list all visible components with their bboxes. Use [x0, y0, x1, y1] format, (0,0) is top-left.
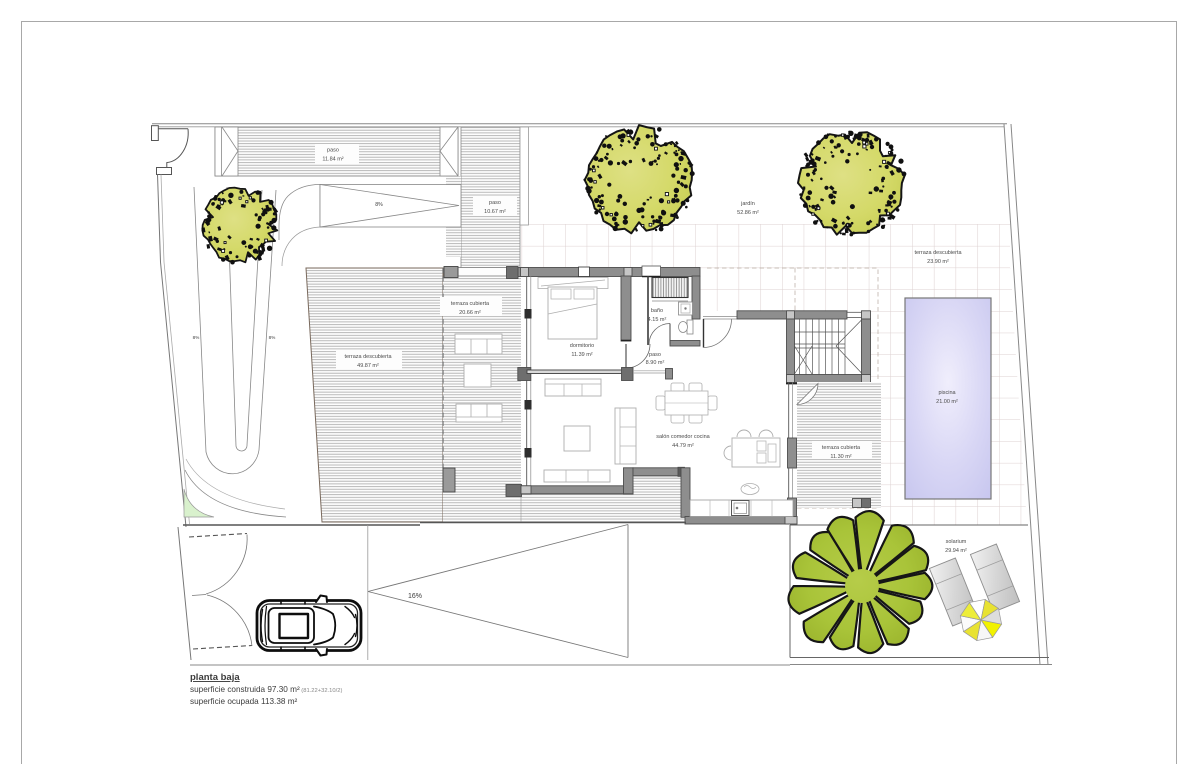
svg-text:52.86 m²: 52.86 m²: [737, 210, 759, 216]
svg-text:21.00 m²: 21.00 m²: [936, 399, 958, 405]
svg-text:29.94 m²: 29.94 m²: [945, 548, 967, 554]
svg-text:20.66 m²: 20.66 m²: [459, 310, 481, 316]
svg-text:44.79 m²: 44.79 m²: [672, 443, 694, 449]
svg-text:11.84 m²: 11.84 m²: [322, 157, 343, 163]
svg-text:terraza descubierta: terraza descubierta: [914, 250, 962, 256]
svg-text:terraza cubierta: terraza cubierta: [822, 445, 861, 451]
svg-text:terraza descubierta: terraza descubierta: [344, 354, 392, 360]
svg-text:salón comedor cocina: salón comedor cocina: [656, 434, 710, 440]
svg-text:10.67 m²: 10.67 m²: [484, 209, 506, 215]
svg-text:8%: 8%: [375, 202, 383, 208]
svg-text:23.90 m²: 23.90 m²: [927, 259, 949, 265]
svg-text:terraza cubierta: terraza cubierta: [451, 301, 490, 307]
svg-text:8%: 8%: [269, 335, 276, 340]
svg-text:superficie ocupada 113.38 m²: superficie ocupada 113.38 m²: [190, 697, 298, 706]
svg-text:11.39 m²: 11.39 m²: [571, 352, 592, 358]
svg-text:paso: paso: [489, 200, 501, 206]
svg-text:piscina: piscina: [938, 390, 956, 396]
svg-text:dormitorio: dormitorio: [570, 343, 594, 349]
svg-text:jardín: jardín: [740, 201, 755, 207]
svg-text:11.30 m²: 11.30 m²: [830, 454, 851, 460]
svg-text:16%: 16%: [408, 593, 422, 600]
svg-text:8%: 8%: [193, 335, 200, 340]
svg-text:baño: baño: [651, 308, 663, 314]
svg-text:paso: paso: [327, 148, 339, 154]
svg-text:planta baja: planta baja: [190, 672, 240, 683]
svg-text:4.15 m²: 4.15 m²: [648, 317, 667, 323]
svg-text:paso: paso: [649, 352, 661, 358]
svg-text:49.87 m²: 49.87 m²: [357, 363, 379, 369]
svg-text:8.90 m²: 8.90 m²: [646, 360, 665, 366]
svg-text:superficie construida 97.30 m²: superficie construida 97.30 m² (81.22+32…: [190, 685, 342, 694]
svg-text:solarium: solarium: [946, 539, 967, 545]
